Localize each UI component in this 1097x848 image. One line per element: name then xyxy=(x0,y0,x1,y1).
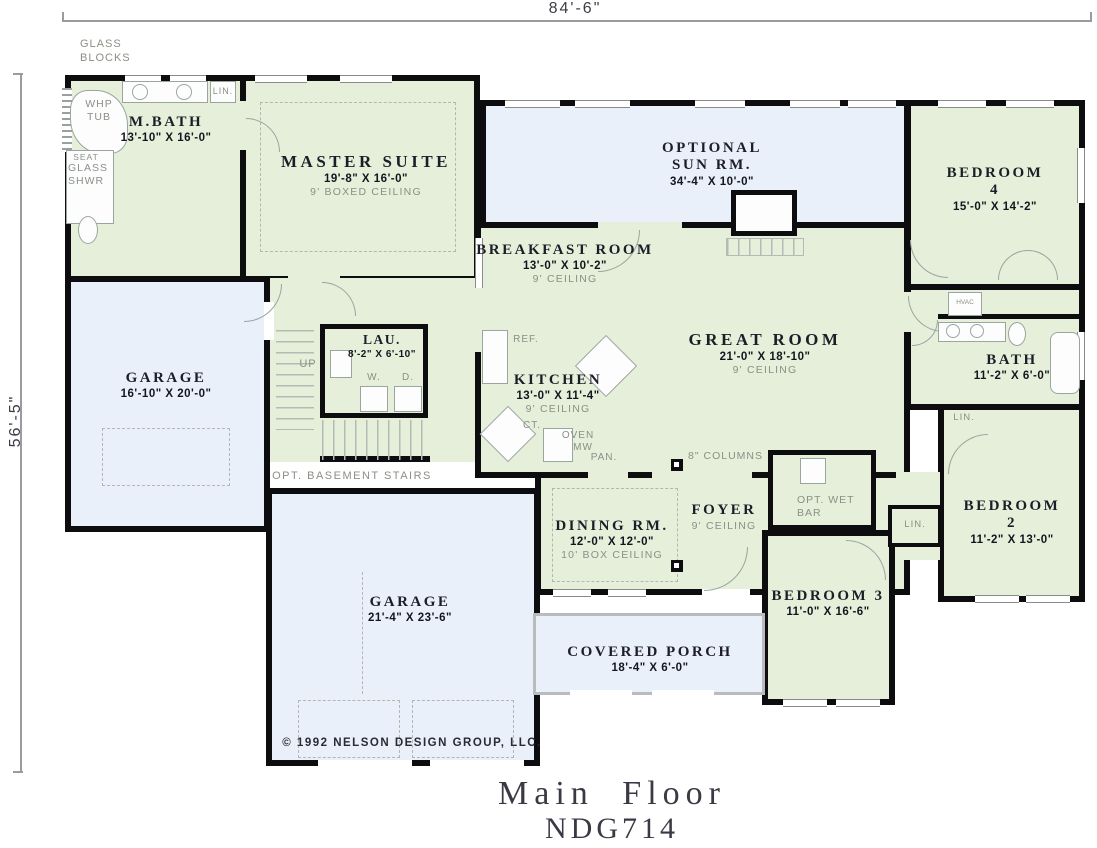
label-bath: BATH 11'-2" X 6'-0" xyxy=(974,352,1050,382)
wet-bar-sink-fixture xyxy=(800,458,826,484)
window-bedroom2-1 xyxy=(975,595,1019,603)
glass-shower-note: GLASS SHWR xyxy=(68,162,108,188)
cooktop-note: CT. xyxy=(523,420,541,433)
wall-mbath-master-lower xyxy=(240,150,246,282)
window-sunroom-3 xyxy=(695,100,745,108)
label-bedroom2: BEDROOM 2 11'-2" X 13'-0" xyxy=(964,498,1061,546)
left-dim-tick-top xyxy=(13,73,23,75)
left-dim-tick-bottom xyxy=(13,771,23,773)
opening-greatroom-foyer xyxy=(652,470,752,480)
basement-stairs-note: OPT. BASEMENT STAIRS xyxy=(272,470,432,484)
window-bedroom4-right xyxy=(1077,148,1085,203)
top-dim-tick-left xyxy=(62,12,64,22)
plan-number: NDG714 xyxy=(545,812,679,846)
label-breakfast-room: BREAKFAST ROOM 13'-0" X 10'-2" 9' CEILIN… xyxy=(476,242,653,285)
label-dining-room: DINING RM. 12'-0" X 12'-0" 10' BOX CEILI… xyxy=(555,518,668,561)
window-sunroom-2 xyxy=(575,100,630,108)
window-dining-bay-1 xyxy=(553,589,591,597)
window-dining-bay-2 xyxy=(608,589,646,597)
label-kitchen: KITCHEN 13'-0" X 11'-4" 9' CEILING xyxy=(514,372,602,415)
dryer-fixture xyxy=(394,386,422,412)
label-great-room: GREAT ROOM 21'-0" X 18'-10" 9' CEILING xyxy=(689,330,842,376)
stairs-up-note: UP xyxy=(299,358,316,372)
columns-note: 8" COLUMNS xyxy=(688,450,763,463)
toilet-mbath-fixture xyxy=(78,216,98,244)
sink-bath-1 xyxy=(946,324,960,338)
window-bedroom2-2 xyxy=(1026,595,1070,603)
label-garage-side: GARAGE 16'-10" X 20'-0" xyxy=(121,370,212,400)
fireplace xyxy=(731,190,797,236)
bathtub-fixture xyxy=(1050,332,1080,394)
wet-bar-note: OPT. WET BAR xyxy=(797,494,855,520)
window-sunroom-5 xyxy=(848,100,896,108)
label-laundry: LAU. 8'-2" X 6'-10" xyxy=(348,332,416,360)
porch-opening-1 xyxy=(570,690,632,696)
garage-rear-door-outline-2 xyxy=(412,700,514,758)
window-bedroom4-2 xyxy=(1006,100,1054,108)
garage-side-door-outline xyxy=(102,428,230,486)
glass-blocks-note: GLASS BLOCKS xyxy=(80,38,131,66)
opening-kitchen-pantry xyxy=(588,469,628,481)
top-dim-tick-right xyxy=(1090,12,1092,22)
opening-master-hall xyxy=(288,272,340,284)
copyright-line: © 1992 NELSON DESIGN GROUP, LLC. xyxy=(282,737,541,749)
oven-note: OVEN xyxy=(562,430,594,443)
column-marker-2 xyxy=(671,560,683,572)
whirlpool-tub-note: WHP TUB xyxy=(85,98,113,124)
toilet-bath-fixture xyxy=(1008,322,1026,346)
room-garage-side xyxy=(65,276,270,532)
label-covered-porch: COVERED PORCH 18'-4" X 6'-0" xyxy=(567,644,732,674)
washer-note: W. xyxy=(367,372,381,385)
label-garage-rear: GARAGE 21'-4" X 23'-6" xyxy=(368,594,452,624)
label-foyer: FOYER 9' CEILING xyxy=(692,502,757,532)
pantry-note: PAN. xyxy=(591,452,618,465)
hvac-note: HVAC xyxy=(956,299,974,307)
sink-bath-2 xyxy=(970,324,984,338)
floor-plan-sheet: 84'-6" 56'-5" xyxy=(0,0,1097,848)
label-bedroom4: BEDROOM 4 15'-0" X 14'-2" xyxy=(944,165,1046,213)
window-bedroom4-1 xyxy=(938,100,986,108)
linen-bath-hall-note: LIN. xyxy=(953,412,974,424)
sheet-title: Main Floor xyxy=(498,775,726,813)
label-mbath: M.BATH 13'-10" X 16'-0" xyxy=(121,114,212,144)
window-master-2 xyxy=(340,75,392,83)
column-marker-1 xyxy=(671,459,683,471)
garage-door-opening-1 xyxy=(318,760,412,768)
refrigerator-note: REF. xyxy=(513,334,539,347)
window-master-1 xyxy=(255,75,307,83)
window-bedroom3-2 xyxy=(836,699,880,707)
basement-stairs-treads xyxy=(322,420,426,460)
label-bedroom3: BEDROOM 3 11'-0" X 16'-6" xyxy=(772,588,885,618)
label-sun-room: OPTIONAL SUN RM. 34'-4" X 10'-0" xyxy=(662,140,762,188)
garage-rear-door-outline-1 xyxy=(298,700,400,758)
label-master-suite: MASTER SUITE 19'-8" X 16'-0" 9' BOXED CE… xyxy=(281,152,451,198)
linen-mbath-note: LIN. xyxy=(213,86,234,97)
garage-door-opening-2 xyxy=(430,760,524,768)
fireplace-hearth xyxy=(726,238,804,256)
window-sunroom-1 xyxy=(505,100,560,108)
window-sunroom-4 xyxy=(790,100,840,108)
overall-height-dimension: 56'-5" xyxy=(7,381,25,461)
window-bedroom3-1 xyxy=(783,699,827,707)
washer-fixture xyxy=(360,386,388,412)
overall-width-dimension: 84'-6" xyxy=(549,0,602,18)
porch-opening-2 xyxy=(652,690,714,696)
sink-mbath-1 xyxy=(132,84,148,100)
sink-mbath-2 xyxy=(176,84,192,100)
stairs-up-treads xyxy=(276,330,314,430)
dryer-note: D. xyxy=(402,372,414,385)
garage-rear-centerline xyxy=(362,572,363,694)
wall-mbath-master-upper xyxy=(240,75,246,101)
refrigerator-fixture xyxy=(482,330,508,384)
top-dimension-line xyxy=(62,20,1092,22)
linen-bed-hall-note: LIN. xyxy=(904,519,925,531)
